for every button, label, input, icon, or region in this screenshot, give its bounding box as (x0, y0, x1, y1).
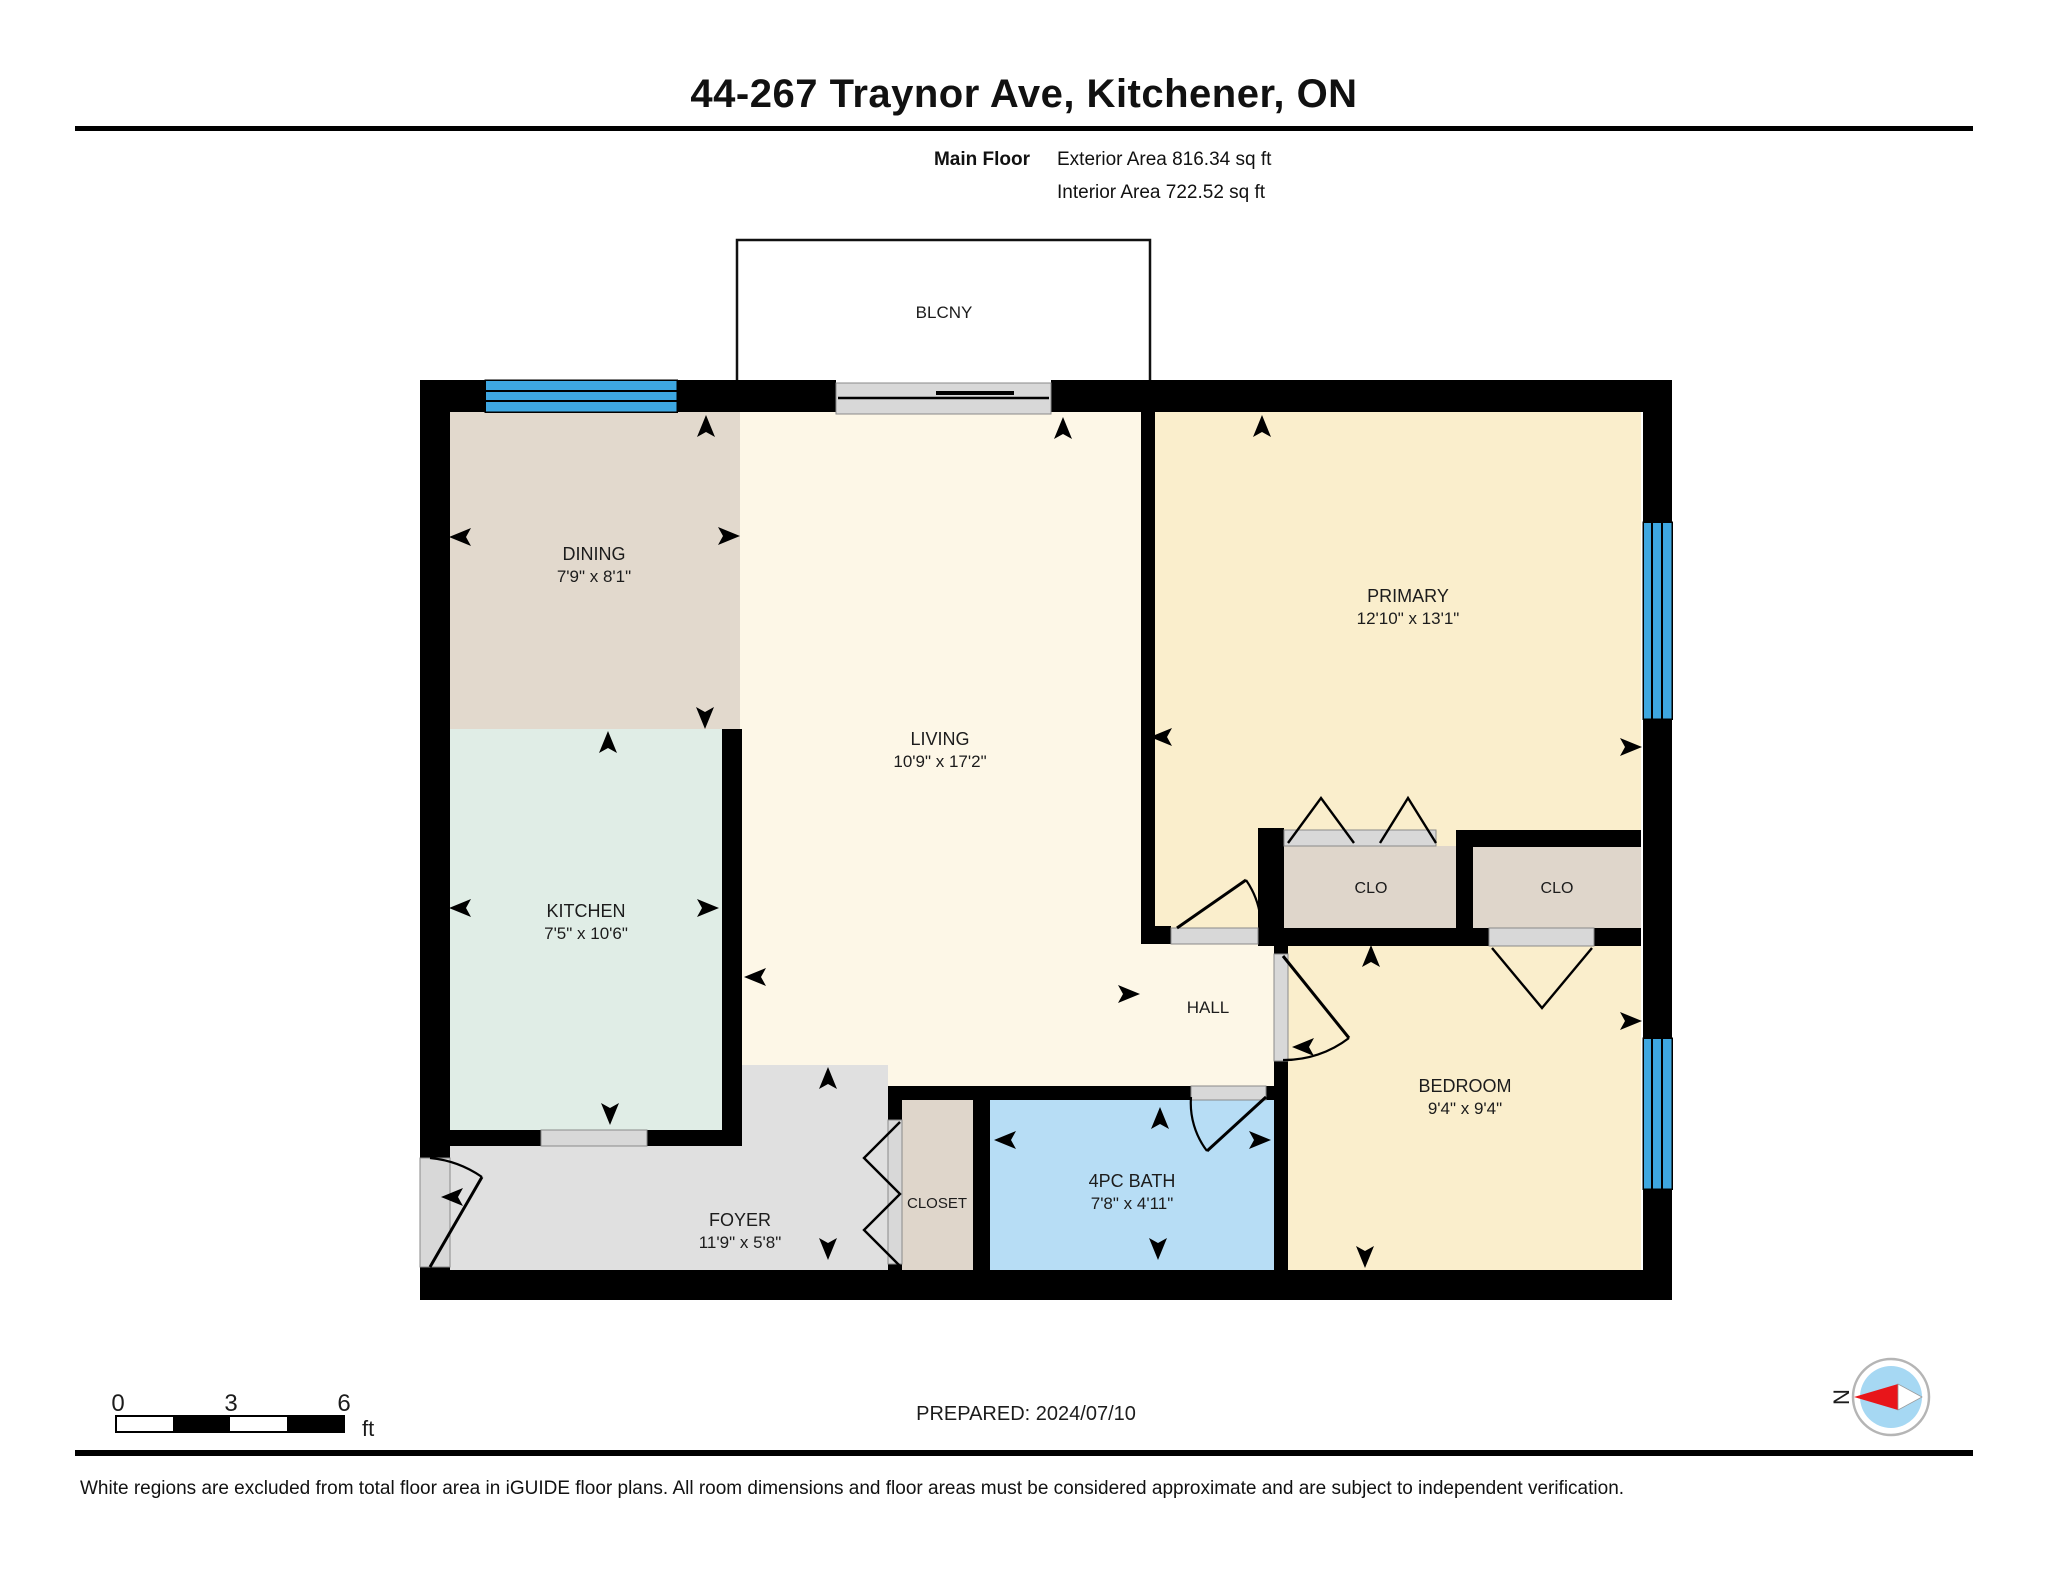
room-dims-primary: 12'10" x 13'1" (1357, 609, 1460, 628)
room-label-clo-right: CLO (1541, 880, 1574, 897)
room-label-foyer: FOYER (709, 1210, 771, 1230)
scale-tick-6: 6 (337, 1390, 350, 1417)
floor-plan: BLCNY DINING 7'9" x 8'1" KITCHEN 7'5" x … (0, 0, 2048, 1583)
bath-door-opening (1191, 1086, 1266, 1100)
room-label-closet: CLOSET (907, 1195, 967, 1212)
room-dims-foyer: 11'9" x 5'8" (699, 1233, 782, 1252)
room-dims-bath: 7'8" x 4'11" (1091, 1194, 1174, 1213)
balcony-label: BLCNY (916, 303, 973, 322)
room-label-dining: DINING (563, 544, 626, 564)
room-label-primary: PRIMARY (1367, 586, 1449, 606)
scale-tick-3: 3 (224, 1390, 237, 1417)
foyer-closet-floor (902, 1100, 973, 1270)
scale-bar: 0 3 6 ft (111, 1390, 374, 1441)
clo-left-opening (1284, 830, 1436, 846)
room-label-living: LIVING (910, 729, 969, 749)
primary-window-icon (1643, 522, 1672, 719)
bedroom-door-opening (1274, 954, 1288, 1061)
footer-divider (75, 1450, 1973, 1456)
compass-north-label: N (1829, 1389, 1854, 1405)
room-label-clo-left: CLO (1355, 880, 1388, 897)
room-label-kitchen: KITCHEN (546, 901, 625, 921)
compass: N (1829, 1359, 1929, 1435)
bedroom-window-icon (1643, 1038, 1672, 1189)
kitchen-window-icon (485, 380, 677, 412)
primary-floor (1155, 412, 1641, 846)
room-label-bedroom: BEDROOM (1418, 1076, 1511, 1096)
foyer-closet-opening (888, 1120, 902, 1264)
clo-right-opening (1489, 928, 1594, 946)
room-dims-bedroom: 9'4" x 9'4" (1428, 1099, 1502, 1118)
footer-note: White regions are excluded from total fl… (80, 1478, 1980, 1500)
hall-strip-floor (888, 1065, 1141, 1086)
primary-door-opening (1171, 928, 1258, 944)
room-dims-kitchen: 7'5" x 10'6" (544, 924, 628, 943)
entry-door-opening (420, 1158, 450, 1267)
scale-unit: ft (362, 1416, 374, 1441)
scale-tick-0: 0 (111, 1390, 124, 1417)
room-dims-living: 10'9" x 17'2" (893, 752, 986, 771)
room-label-hall: HALL (1187, 998, 1230, 1017)
kitchen-passthrough-opening (541, 1130, 647, 1146)
room-label-bath: 4PC BATH (1089, 1171, 1176, 1191)
room-dims-dining: 7'9" x 8'1" (557, 567, 631, 586)
prepared-date: PREPARED: 2024/07/10 (916, 1403, 1136, 1425)
